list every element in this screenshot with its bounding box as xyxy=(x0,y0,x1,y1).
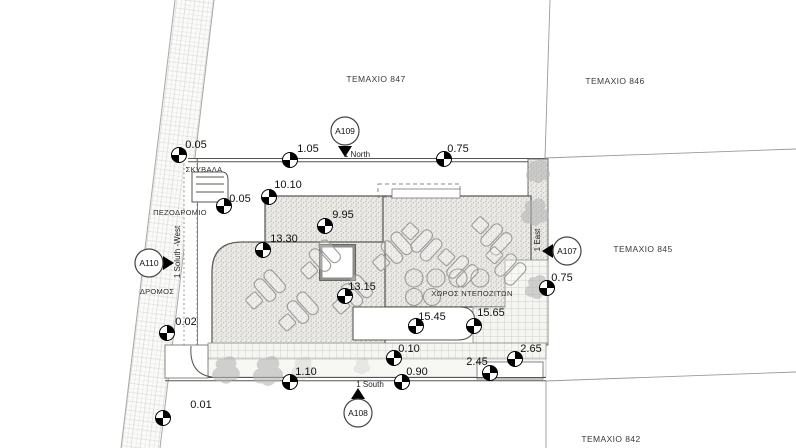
gate-swing xyxy=(165,345,212,378)
callout-a110-label: A110 xyxy=(139,258,158,268)
parcel-label-842: ΤΕΜΑΧΙΟ 842 xyxy=(581,434,640,444)
dim-label-1565: 15.65 xyxy=(477,307,505,319)
dim-label-1010: 10.10 xyxy=(274,179,302,191)
dim-label-265: 2.65 xyxy=(520,343,541,355)
edge-label-southwest: 1 Soluth -West xyxy=(173,225,182,278)
site-plan-svg: 0.05 1.05 0.75 0.05 10.10 9.95 13.30 13.… xyxy=(0,0,796,448)
parcel-label-847: ΤΕΜΑΧΙΟ 847 xyxy=(346,74,405,84)
dim-label-002: 0.02 xyxy=(175,316,196,328)
parcel-label-846: ΤΕΜΑΧΙΟ 846 xyxy=(585,76,644,86)
dim-label-995: 9.95 xyxy=(332,209,353,221)
garbage-label: ΣΚΥΒΑΛΑ xyxy=(186,165,223,174)
callout-a108-label: A108 xyxy=(348,408,368,418)
dim-label-110: 1.10 xyxy=(295,366,316,378)
dim-label-north-075: 0.75 xyxy=(447,143,468,155)
edge-label-north: 1 North xyxy=(344,150,370,159)
dim-label-001: 0.01 xyxy=(190,399,211,411)
site-plan-canvas: 0.05 1.05 0.75 0.05 10.10 9.95 13.30 13.… xyxy=(0,0,796,448)
dim-label-090: 0.90 xyxy=(406,366,427,378)
dim-label-245: 2.45 xyxy=(466,356,487,368)
dim-label-010: 0.10 xyxy=(398,343,419,355)
dim-label-1545: 15.45 xyxy=(418,311,446,323)
dim-label-1330: 13.30 xyxy=(270,233,298,245)
dim-label-east-075: 0.75 xyxy=(551,272,572,284)
edge-label-east: 1 East xyxy=(533,228,542,251)
callout-a109-label: A109 xyxy=(335,126,355,136)
deposits-label: ΧΩΡΟΣ ΝΤΕΠΟΖΙΤΩΝ xyxy=(431,289,512,298)
garbage-enclosure xyxy=(192,172,228,202)
callout-a107-label: A107 xyxy=(557,246,577,256)
south-walkway xyxy=(208,343,546,359)
dim-label-north-105: 1.05 xyxy=(297,143,318,155)
parcel-label-845: ΤΕΜΑΧΙΟ 845 xyxy=(613,244,672,254)
road-label: ΔΡΟΜΟΣ xyxy=(140,287,174,296)
edge-label-south: 1 South xyxy=(356,380,384,389)
dim-label-1315: 13.15 xyxy=(348,281,376,293)
sidewalk-label: ΠΕΖΟΔΡΟΜΙΟ xyxy=(153,208,207,217)
dim-label-north-005: 0.05 xyxy=(185,139,206,151)
dim-label-west-005: 0.05 xyxy=(229,193,250,205)
